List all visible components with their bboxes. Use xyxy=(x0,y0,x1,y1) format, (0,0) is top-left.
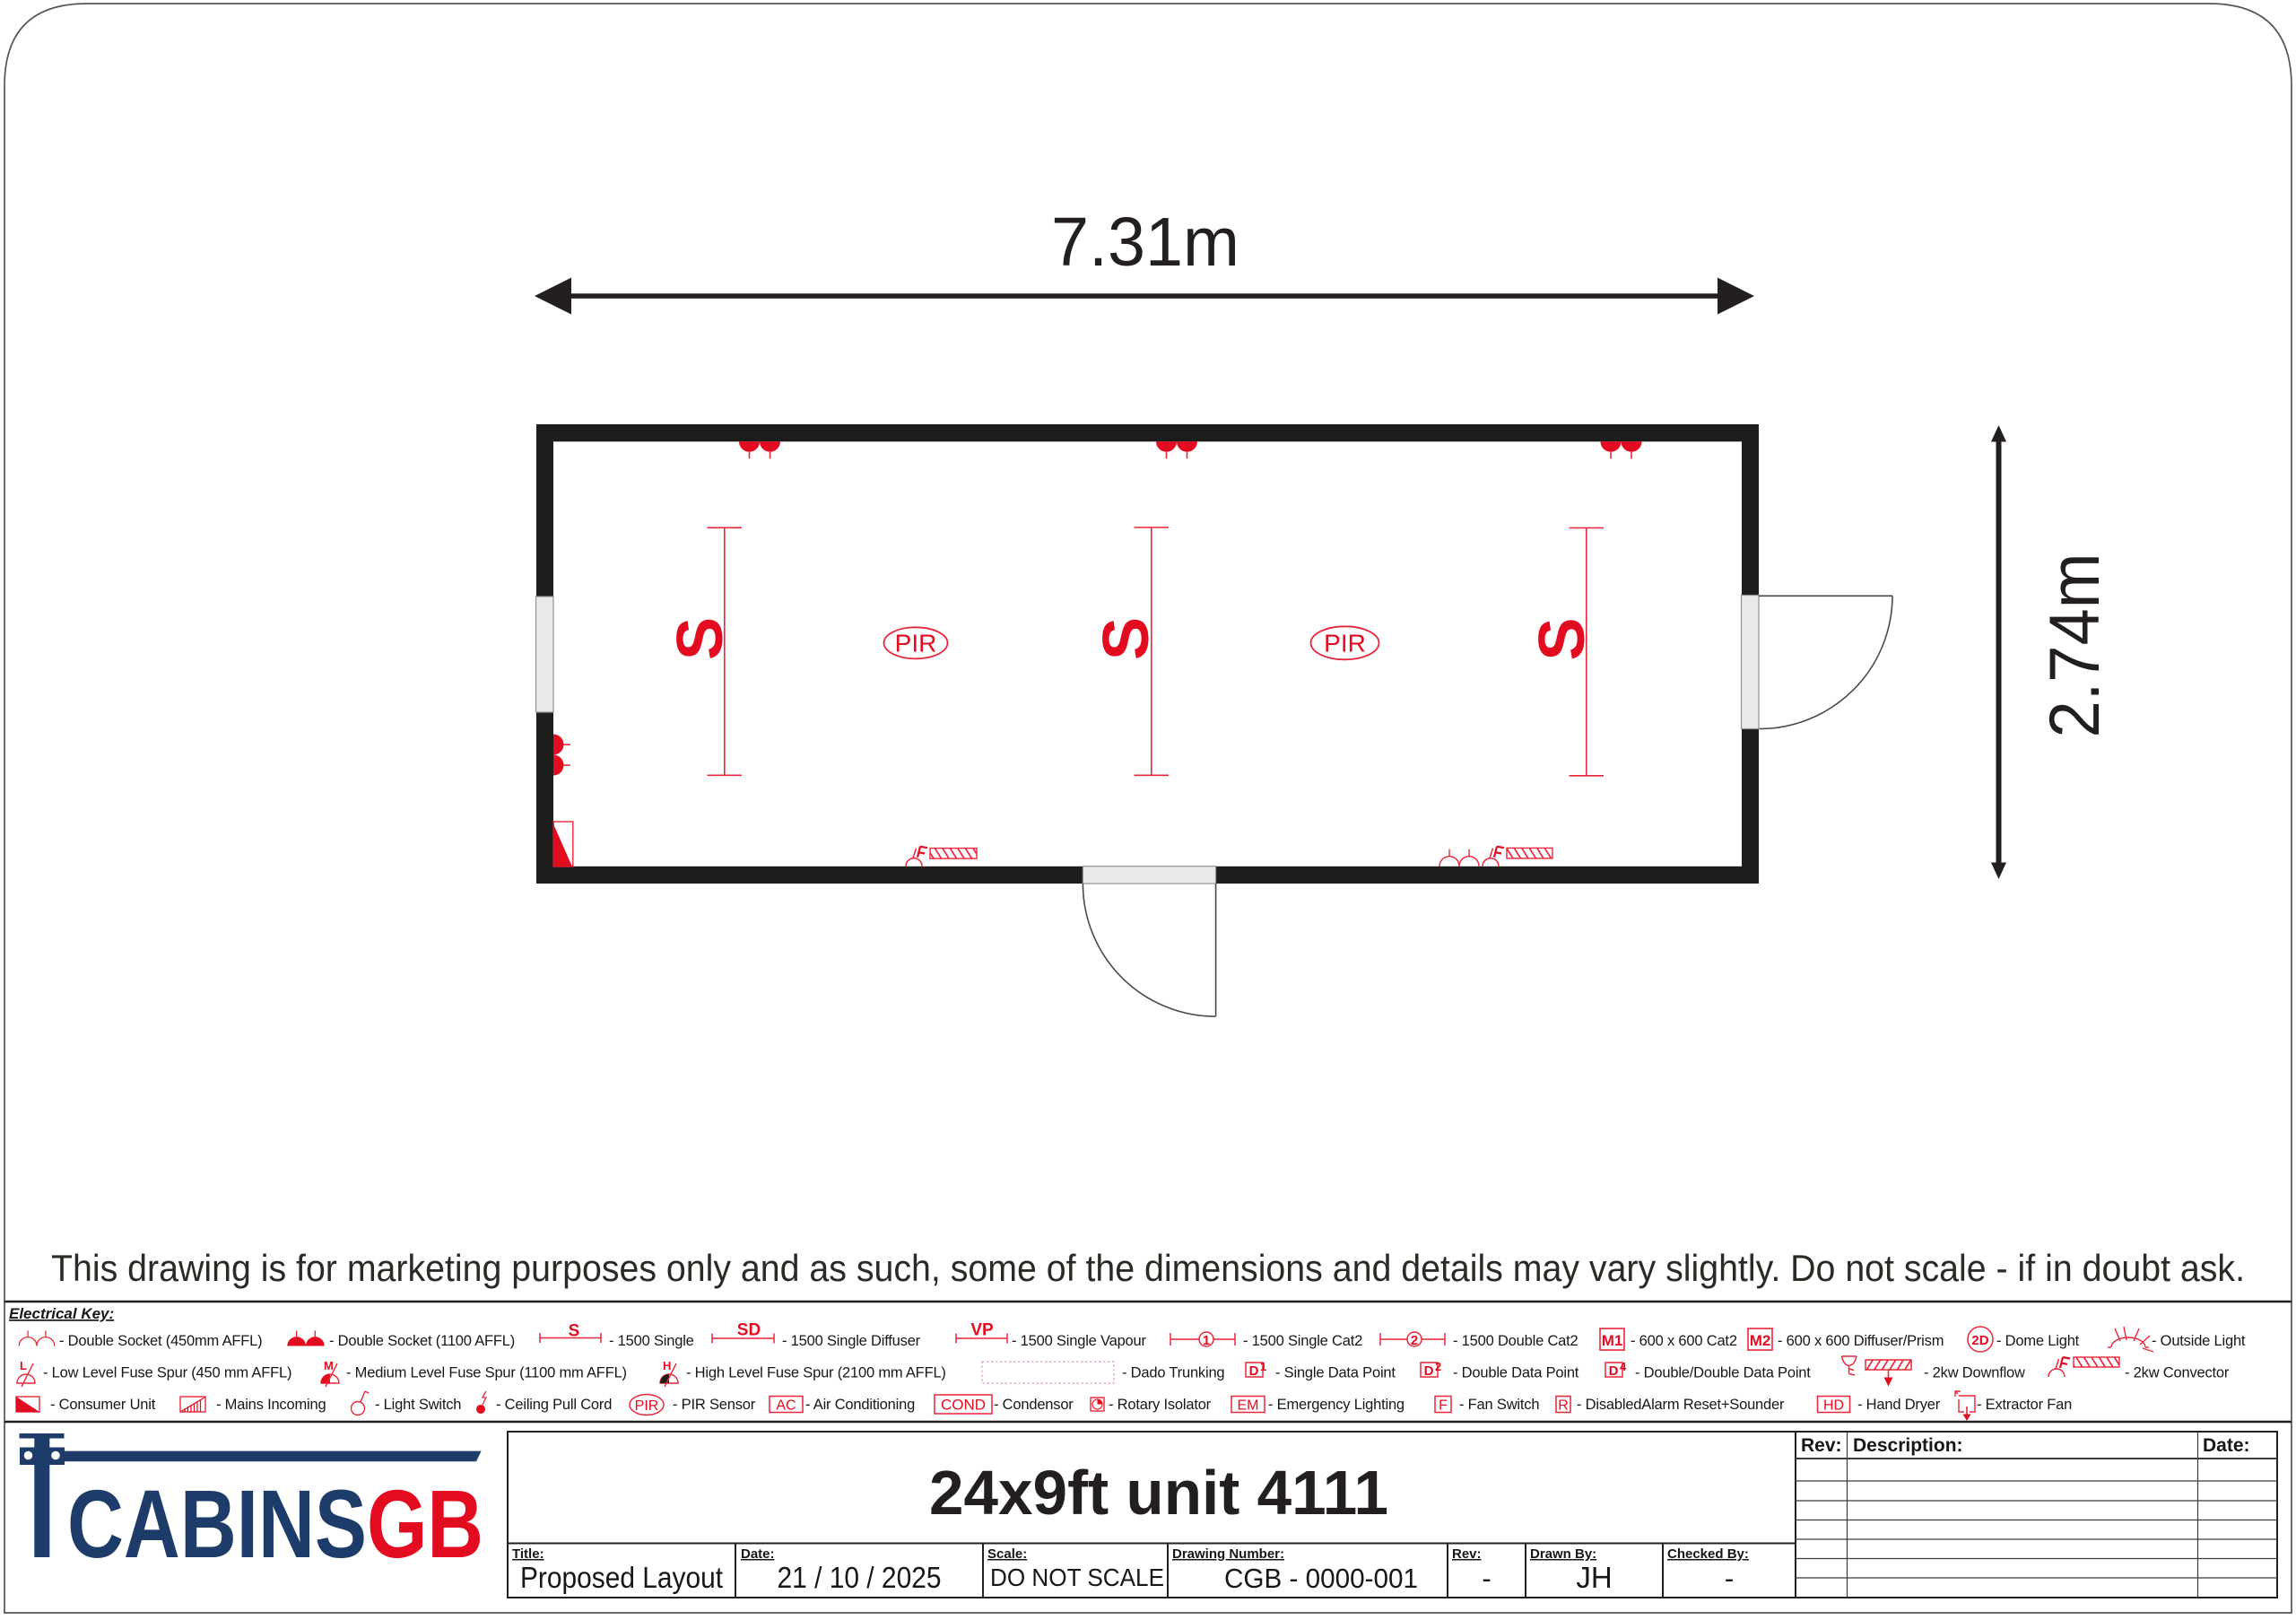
svg-text:- Rotary Isolator: - Rotary Isolator xyxy=(1109,1397,1212,1413)
svg-text:S: S xyxy=(1091,617,1162,660)
svg-text:- Medium Level Fuse Spur (1100: - Medium Level Fuse Spur (1100 mm AFFL) xyxy=(346,1365,627,1381)
svg-text:21 / 10 / 2025: 21 / 10 / 2025 xyxy=(778,1561,942,1594)
svg-text:2D: 2D xyxy=(1971,1333,1988,1348)
svg-text:D: D xyxy=(1249,1363,1259,1379)
svg-text:F: F xyxy=(1439,1398,1448,1414)
svg-text:1: 1 xyxy=(1260,1360,1266,1373)
svg-text:GB: GB xyxy=(367,1469,483,1578)
svg-text:- DisabledAlarm Reset+Sounder: - DisabledAlarm Reset+Sounder xyxy=(1577,1397,1785,1413)
svg-text:CABINS: CABINS xyxy=(67,1469,367,1578)
svg-text:7.31m: 7.31m xyxy=(1051,204,1239,281)
svg-text:-: - xyxy=(1725,1563,1734,1594)
svg-text:- 2kw Convector: - 2kw Convector xyxy=(2125,1365,2230,1381)
svg-text:- Double Data Point: - Double Data Point xyxy=(1453,1365,1579,1381)
svg-text:EM: EM xyxy=(1238,1398,1259,1414)
svg-text:Scale:: Scale: xyxy=(987,1546,1027,1562)
svg-text:PIR: PIR xyxy=(635,1398,659,1414)
svg-text:Date:: Date: xyxy=(2203,1435,2250,1456)
svg-text:S: S xyxy=(1526,617,1598,660)
svg-text:- Dome Light: - Dome Light xyxy=(1996,1333,2080,1349)
svg-text:R: R xyxy=(1558,1398,1569,1414)
svg-text:-: - xyxy=(1482,1563,1491,1594)
svg-text:Title:: Title: xyxy=(512,1546,544,1562)
svg-text:Description:: Description: xyxy=(1853,1435,1963,1456)
svg-text:- Dado Trunking: - Dado Trunking xyxy=(1122,1365,1224,1381)
svg-text:PIR: PIR xyxy=(895,630,937,658)
svg-text:Drawn By:: Drawn By: xyxy=(1530,1546,1596,1562)
svg-text:S: S xyxy=(569,1322,580,1341)
svg-text:Drawing Number:: Drawing Number: xyxy=(1172,1546,1284,1562)
svg-text:- 600 x 600 Diffuser/Prism: - 600 x 600 Diffuser/Prism xyxy=(1778,1333,1944,1349)
svg-text:- Air Conditioning: - Air Conditioning xyxy=(805,1397,915,1413)
svg-text:D: D xyxy=(1609,1363,1619,1379)
svg-text:- Light Switch: - Light Switch xyxy=(375,1397,461,1413)
svg-text:HD: HD xyxy=(1823,1398,1844,1414)
svg-text:AC: AC xyxy=(776,1398,796,1414)
svg-text:D: D xyxy=(1424,1363,1434,1379)
svg-text:M: M xyxy=(324,1359,334,1372)
svg-text:- 1500 Single Vapour: - 1500 Single Vapour xyxy=(1012,1333,1147,1349)
svg-text:- 2kw Downflow: - 2kw Downflow xyxy=(1924,1365,2025,1381)
svg-text:2: 2 xyxy=(1435,1360,1441,1373)
svg-text:CGB - 0000-001: CGB - 0000-001 xyxy=(1224,1563,1418,1594)
svg-text:24x9ft unit 4111: 24x9ft unit 4111 xyxy=(929,1458,1388,1528)
svg-text:L: L xyxy=(20,1359,27,1372)
svg-text:- High Level Fuse Spur (2100 m: - High Level Fuse Spur (2100 mm AFFL) xyxy=(686,1365,946,1381)
svg-text:VP: VP xyxy=(970,1321,994,1340)
svg-text:DO NOT SCALE: DO NOT SCALE xyxy=(990,1563,1164,1591)
svg-text:S: S xyxy=(665,617,736,660)
svg-text:- Ceiling Pull Cord: - Ceiling Pull Cord xyxy=(496,1397,612,1413)
svg-text:Proposed Layout: Proposed Layout xyxy=(520,1561,723,1594)
svg-text:2: 2 xyxy=(1411,1333,1418,1348)
svg-text:- PIR Sensor: - PIR Sensor xyxy=(673,1397,756,1413)
svg-text:- 1500 Double Cat2: - 1500 Double Cat2 xyxy=(1453,1333,1578,1349)
svg-text:SD: SD xyxy=(737,1321,761,1340)
svg-text:- Mains Incoming: - Mains Incoming xyxy=(216,1397,326,1413)
svg-text:- 1500 Single Cat2: - 1500 Single Cat2 xyxy=(1243,1333,1362,1349)
svg-text:- Hand Dryer: - Hand Dryer xyxy=(1857,1397,1941,1413)
svg-text:- 1500 Single Diffuser: - 1500 Single Diffuser xyxy=(782,1333,921,1349)
svg-text:2.74m: 2.74m xyxy=(2034,553,2114,738)
svg-text:- Emergency Lighting: - Emergency Lighting xyxy=(1268,1397,1405,1413)
svg-text:H: H xyxy=(663,1359,671,1372)
svg-text:Checked By:: Checked By: xyxy=(1667,1546,1749,1562)
svg-text:M2: M2 xyxy=(1750,1332,1771,1349)
svg-text:Rev:: Rev: xyxy=(1452,1546,1482,1562)
svg-text:- Double Socket (1100 AFFL): - Double Socket (1100 AFFL) xyxy=(329,1333,515,1349)
svg-text:- Extractor Fan: - Extractor Fan xyxy=(1977,1397,2072,1413)
svg-text:- 1500 Single: - 1500 Single xyxy=(609,1333,694,1349)
svg-text:- 600 x 600 Cat2: - 600 x 600 Cat2 xyxy=(1631,1333,1737,1349)
svg-text:- Fan Switch: - Fan Switch xyxy=(1459,1397,1539,1413)
svg-text:- Double Socket (450mm AFFL): - Double Socket (450mm AFFL) xyxy=(59,1333,262,1349)
svg-text:1: 1 xyxy=(1203,1333,1210,1348)
svg-text:4: 4 xyxy=(1620,1360,1627,1373)
svg-text:- Single Data Point: - Single Data Point xyxy=(1275,1365,1396,1381)
svg-text:- Consumer Unit: - Consumer Unit xyxy=(50,1397,156,1413)
svg-text:- Low Level Fuse Spur (450 mm: - Low Level Fuse Spur (450 mm AFFL) xyxy=(43,1365,291,1381)
svg-text:- Outside Light: - Outside Light xyxy=(2152,1333,2246,1349)
svg-text:- Condensor: - Condensor xyxy=(994,1397,1074,1413)
svg-text:JH: JH xyxy=(1576,1561,1612,1594)
svg-text:Date:: Date: xyxy=(741,1546,775,1562)
svg-text:M1: M1 xyxy=(1602,1332,1623,1349)
svg-text:This drawing is for marketing: This drawing is for marketing purposes o… xyxy=(51,1247,2245,1289)
svg-text:- Double/Double Data Point: - Double/Double Data Point xyxy=(1635,1365,1811,1381)
svg-text:PIR: PIR xyxy=(1324,630,1366,658)
svg-text:COND: COND xyxy=(941,1397,986,1414)
svg-text:Rev:: Rev: xyxy=(1801,1435,1842,1456)
svg-text:Electrical Key:: Electrical Key: xyxy=(9,1305,114,1322)
